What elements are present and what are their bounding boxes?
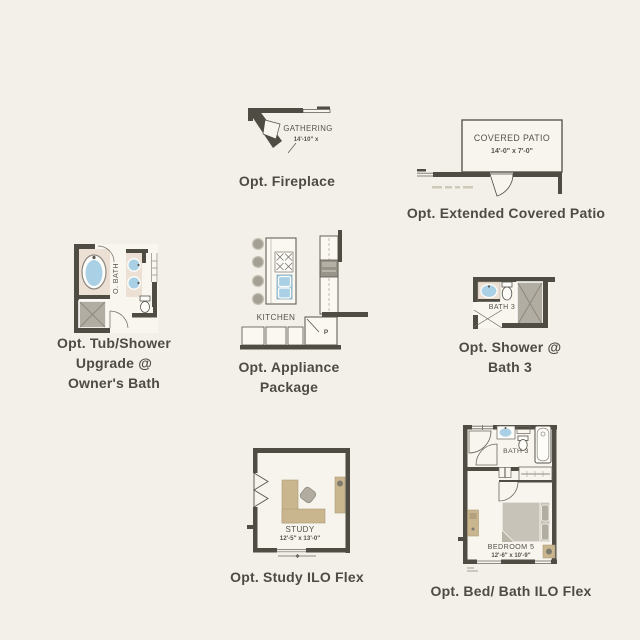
patio-plan-diagram: COVERED PATIO 14'-0" x 7'-0" [415,110,605,202]
gathering-room-label: GATHERING [283,124,332,133]
desk-icon [282,509,325,523]
pantry [305,317,337,345]
pillow-icon [542,524,550,540]
gathering-dims: 14'-10" x [294,137,319,143]
patio-room-label: COVERED PATIO [474,133,550,143]
fireplace-plan-diagram: GATHERING 14'-10" x [240,95,350,167]
bath3-shower-plan-diagram: BATH 3 [458,267,558,335]
patio-door-swing [490,174,513,196]
study-plan-diagram: STUDY 12'-5" x 13'-0" [242,446,354,561]
study-room-label: STUDY [285,525,314,534]
bath3-room-label: BATH 3 [489,304,515,311]
bedbath-bath-label: BATH 3 [503,448,529,455]
kitchen-room-label: KITCHEN [257,313,296,322]
floorplan-options-panel: GATHERING 14'-10" x Opt. Fireplace COVER… [0,0,640,640]
toilet-icon [141,302,150,313]
faded-wall-dashes [432,186,473,189]
owners-bath-caption: Opt. Tub/Shower Upgrade @ Owner's Bath [57,333,171,393]
kitchen-plan-diagram: KITCHEN P [238,230,368,352]
bedroom5-room-label: BEDROOM 5 [488,542,535,551]
bed-bath-caption: Opt. Bed/ Bath ILO Flex [431,581,592,601]
owners-bath-room-label: O. BATH [111,263,120,294]
owners-bath-plan-diagram: O. BATH [58,237,163,335]
toilet-icon [502,287,512,300]
patio-outline [462,120,562,172]
sink-icon [499,428,512,438]
bar-stools [253,239,264,305]
study-caption: Opt. Study ILO Flex [230,567,364,587]
pantry-label: P [324,329,329,336]
fireplace-caption: Opt. Fireplace [239,171,335,191]
patio-dims: 14'-0" x 7'-0" [491,148,533,155]
patio-caption: Opt. Extended Covered Patio [407,203,605,223]
appliance-caption: Opt. Appliance Package [238,357,339,397]
bedroom5-dims: 12'-6" x 10'-9" [491,553,530,559]
pillow-icon [542,505,550,521]
bed-bath-plan-diagram: BATH 3 BEDROOM 5 12'-6" x 10'-9" [447,407,567,575]
shower-bath3-caption: Opt. Shower @ Bath 3 [459,337,562,377]
study-dims: 12'-5" x 13'-0" [280,535,321,542]
